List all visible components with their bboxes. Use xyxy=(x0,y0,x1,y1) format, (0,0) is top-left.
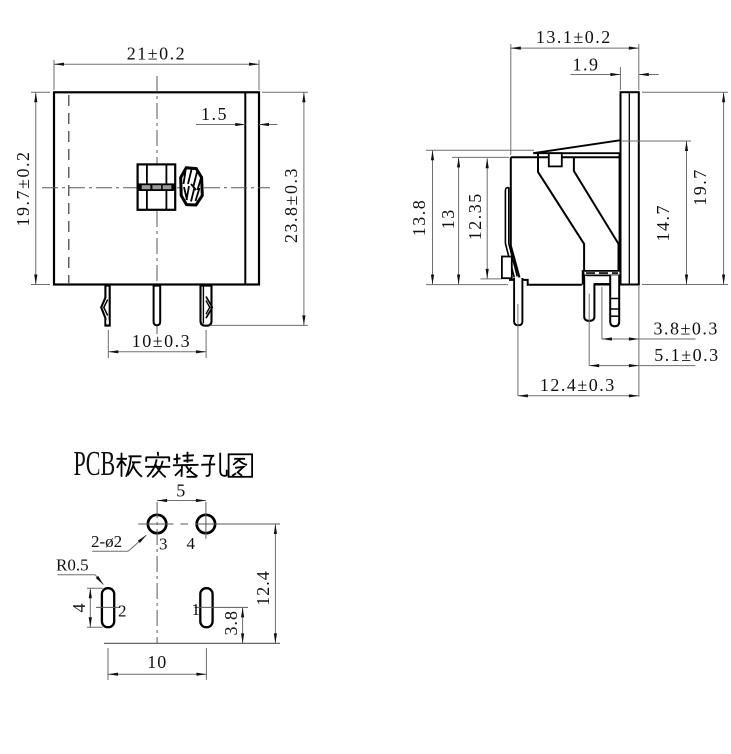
svg-text:13.8: 13.8 xyxy=(409,199,429,237)
svg-text:13: 13 xyxy=(438,208,458,229)
svg-text:23.8±0.3: 23.8±0.3 xyxy=(281,167,301,243)
svg-text:3: 3 xyxy=(159,535,168,554)
svg-text:10±0.3: 10±0.3 xyxy=(132,331,191,351)
svg-text:4: 4 xyxy=(187,534,196,553)
svg-text:13.1±0.2: 13.1±0.2 xyxy=(536,27,612,47)
svg-text:2: 2 xyxy=(118,602,127,621)
svg-text:3.8±0.3: 3.8±0.3 xyxy=(654,319,719,339)
svg-text:12.4: 12.4 xyxy=(253,570,273,606)
svg-text:12.4±0.3: 12.4±0.3 xyxy=(540,375,616,395)
svg-text:21±0.2: 21±0.2 xyxy=(127,44,186,64)
svg-text:19.7: 19.7 xyxy=(690,168,710,206)
svg-text:5.1±0.3: 5.1±0.3 xyxy=(654,345,719,365)
svg-text:PCB: PCB xyxy=(74,445,116,483)
svg-text:14.7: 14.7 xyxy=(653,204,673,242)
svg-text:3.8: 3.8 xyxy=(221,610,241,636)
svg-text:1.9: 1.9 xyxy=(573,55,600,75)
svg-text:1.5: 1.5 xyxy=(201,104,228,124)
svg-text:12.35: 12.35 xyxy=(465,192,485,240)
svg-text:1: 1 xyxy=(192,600,201,619)
svg-text:10: 10 xyxy=(147,652,167,672)
svg-text:4: 4 xyxy=(69,603,89,613)
svg-text:2-ø2: 2-ø2 xyxy=(91,532,122,551)
svg-text:19.7±0.2: 19.7±0.2 xyxy=(13,151,33,227)
svg-text:5: 5 xyxy=(176,481,186,501)
svg-text:R0.5: R0.5 xyxy=(56,556,89,575)
